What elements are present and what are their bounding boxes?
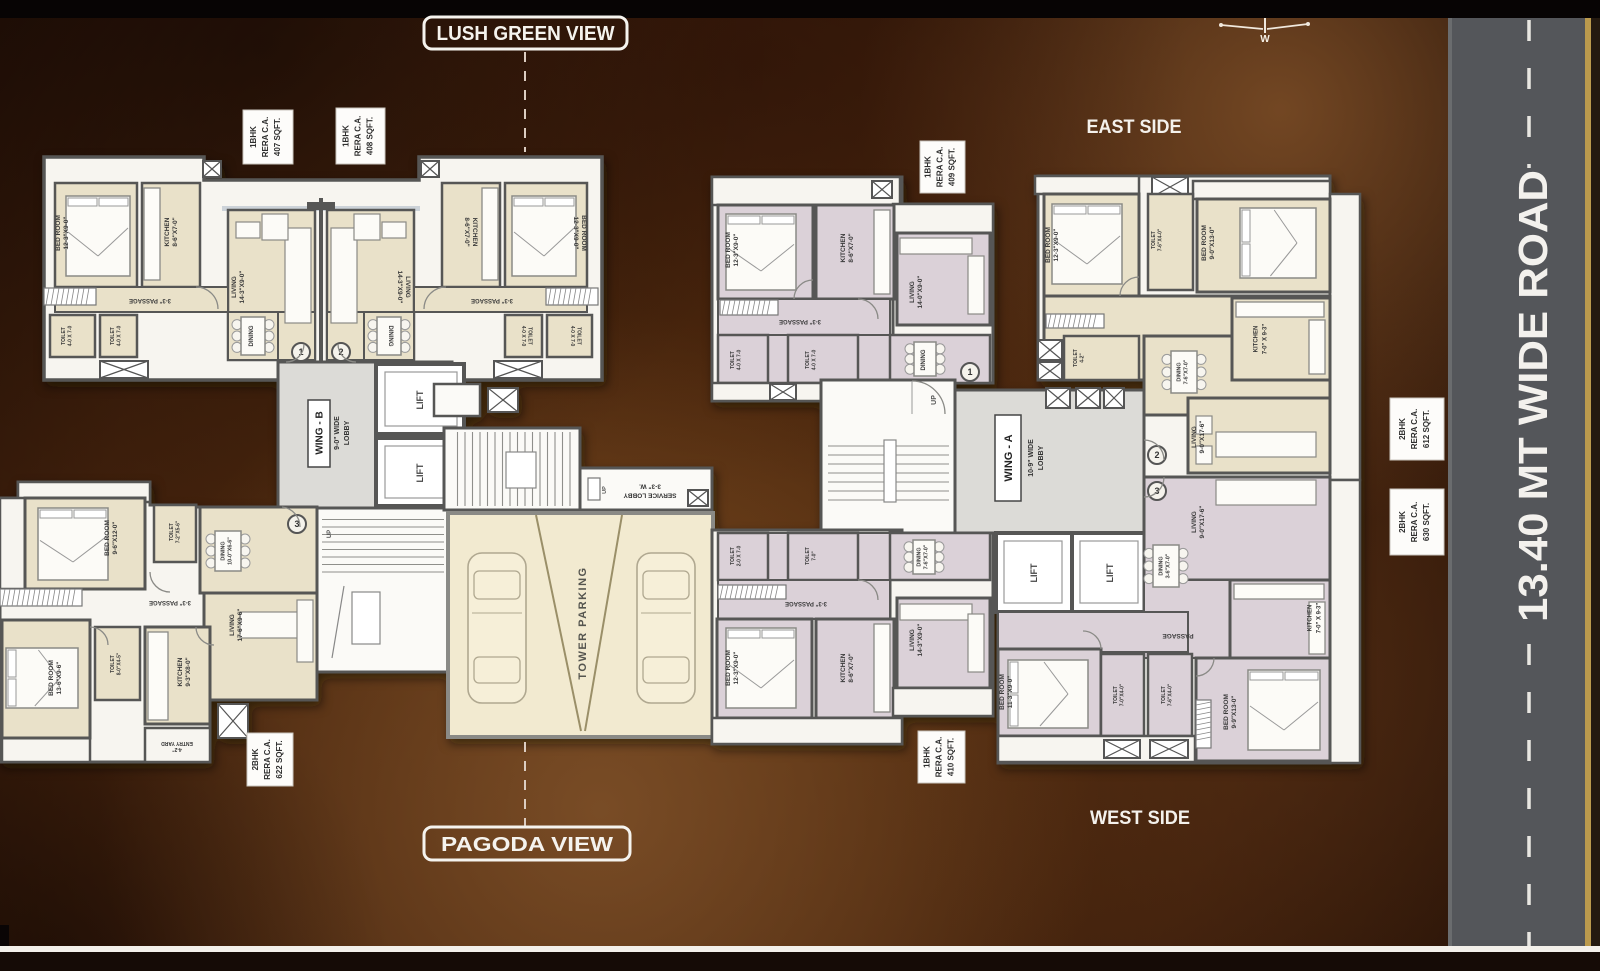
svg-text:BED ROOM: BED ROOM (104, 520, 111, 556)
svg-text:4-0 X 7-0: 4-0 X 7-0 (116, 326, 122, 347)
svg-text:UP: UP (327, 530, 333, 538)
svg-text:4-2": 4-2" (1079, 353, 1085, 363)
svg-text:7-0" X 9-3": 7-0" X 9-3" (1263, 324, 1269, 355)
svg-text:TOILET: TOILET (61, 327, 67, 345)
svg-text:BED ROOM: BED ROOM (1045, 227, 1052, 263)
svg-text:RERA C.A.: RERA C.A. (263, 739, 272, 780)
svg-text:409 SQFT.: 409 SQFT. (948, 148, 957, 186)
svg-text:WEST SIDE: WEST SIDE (1090, 808, 1190, 829)
svg-text:TOILET: TOILET (169, 523, 175, 541)
svg-text:RERA C.A.: RERA C.A. (1410, 502, 1419, 543)
svg-text:8-6"X7-0": 8-6"X7-0" (848, 233, 855, 262)
svg-text:KITCHEN: KITCHEN (840, 233, 847, 262)
svg-text:BED ROOM: BED ROOM (725, 650, 732, 686)
svg-text:13.40 MT WIDE ROAD: 13.40 MT WIDE ROAD (1510, 170, 1556, 622)
svg-text:407 SQFT.: 407 SQFT. (273, 118, 282, 156)
svg-text:RERA C.A.: RERA C.A. (935, 737, 944, 778)
svg-text:12-3"X9-0": 12-3"X9-0" (572, 217, 579, 250)
svg-text:2BHK: 2BHK (1398, 418, 1407, 440)
svg-text:14-0"X9-0": 14-0"X9-0" (917, 276, 924, 309)
svg-text:TOILET: TOILET (730, 547, 736, 565)
svg-text:2: 2 (1154, 450, 1159, 460)
svg-text:DINING: DINING (249, 325, 255, 346)
svg-text:10-0"X6-6": 10-0"X6-6" (228, 537, 234, 565)
svg-text:LIFT: LIFT (1029, 563, 1039, 582)
svg-text:4-0 X 7-0: 4-0 X 7-0 (569, 326, 575, 347)
svg-text:WING - B: WING - B (315, 411, 326, 454)
svg-text:LIVING: LIVING (229, 614, 236, 636)
svg-text:622 SQFT.: 622 SQFT. (275, 740, 284, 778)
svg-text:DINING: DINING (917, 547, 923, 566)
svg-text:TOWER PARKING: TOWER PARKING (577, 566, 589, 679)
svg-text:TOILET: TOILET (1151, 231, 1157, 249)
svg-text:SERVICE LOBBY: SERVICE LOBBY (623, 492, 677, 499)
svg-text:4-0 X 7-0: 4-0 X 7-0 (811, 350, 817, 371)
svg-text:1BHK: 1BHK (924, 156, 933, 178)
svg-text:9-0"X17-6": 9-0"X17-6" (1199, 506, 1206, 539)
svg-text:TOILET: TOILET (575, 327, 581, 345)
svg-text:ENTRY YARD: ENTRY YARD (161, 740, 193, 746)
svg-text:DINING: DINING (221, 541, 227, 560)
svg-text:TOILET: TOILET (110, 655, 116, 673)
svg-text:1BHK: 1BHK (342, 125, 351, 147)
svg-text:14-3"X9-0": 14-3"X9-0" (917, 624, 924, 657)
svg-text:BED ROOM: BED ROOM (1223, 694, 1230, 730)
svg-text:8-0"X4-5": 8-0"X4-5" (116, 652, 122, 675)
svg-text:LIVING: LIVING (404, 276, 411, 298)
svg-text:7-0" X 9-3": 7-0" X 9-3" (1317, 603, 1323, 634)
svg-text:TOILET: TOILET (805, 547, 811, 565)
svg-text:12-3"X9-0": 12-3"X9-0" (733, 234, 740, 267)
svg-text:LIFT: LIFT (415, 390, 425, 409)
svg-text:DINING: DINING (1177, 362, 1183, 381)
svg-text:3-3" PASSAGE: 3-3" PASSAGE (471, 297, 513, 303)
svg-text:17-6"X9-6": 17-6"X9-6" (237, 609, 244, 642)
svg-text:10-9" WIDE: 10-9" WIDE (1028, 439, 1035, 477)
svg-text:DINING: DINING (1159, 556, 1165, 575)
svg-text:PAGODA VIEW: PAGODA VIEW (441, 834, 613, 856)
svg-text:408 SQFT.: 408 SQFT. (366, 117, 375, 155)
svg-text:LIVING: LIVING (909, 629, 916, 651)
svg-text:12-3"X9-0": 12-3"X9-0" (733, 652, 740, 685)
svg-text:13-6"X9-6": 13-6"X9-6" (56, 662, 63, 695)
svg-text:TOILET: TOILET (526, 327, 532, 345)
svg-text:BED ROOM: BED ROOM (725, 232, 732, 268)
svg-text:9-0" WIDE: 9-0" WIDE (334, 416, 341, 450)
svg-text:KITCHEN: KITCHEN (164, 217, 171, 246)
svg-text:TOILET: TOILET (110, 327, 116, 345)
svg-text:RERA C.A.: RERA C.A. (936, 147, 945, 188)
svg-text:3-3" W.: 3-3" W. (639, 483, 661, 490)
svg-text:RERA C.A.: RERA C.A. (1410, 409, 1419, 450)
svg-text:8-6"X7-0": 8-6"X7-0" (848, 653, 855, 682)
svg-text:12-3"X9-0": 12-3"X9-0" (63, 217, 70, 250)
svg-text:LIVING: LIVING (1191, 511, 1198, 533)
svg-text:TOILET: TOILET (730, 351, 736, 369)
svg-text:9-9"X13-0": 9-9"X13-0" (1231, 696, 1238, 729)
svg-text:EAST SIDE: EAST SIDE (1087, 117, 1182, 138)
svg-text:LOBBY: LOBBY (1038, 445, 1045, 470)
svg-text:1: 1 (967, 367, 972, 377)
svg-text:4-0 X 7-0: 4-0 X 7-0 (520, 326, 526, 347)
svg-text:12-3"X9-0": 12-3"X9-0" (1053, 229, 1060, 262)
svg-text:9-0"X17-6": 9-0"X17-6" (1199, 421, 1206, 454)
svg-text:7-0"X4-0": 7-0"X4-0" (1119, 683, 1125, 706)
svg-text:W: W (1260, 34, 1270, 45)
svg-text:4-0 X 7-0: 4-0 X 7-0 (67, 326, 73, 347)
svg-text:2BHK: 2BHK (1398, 511, 1407, 533)
svg-text:3-3" PASSAGE: 3-3" PASSAGE (779, 318, 821, 324)
svg-text:1BHK: 1BHK (923, 746, 932, 768)
svg-text:11-3"X9-0": 11-3"X9-0" (1007, 676, 1014, 709)
svg-text:BED ROOM: BED ROOM (999, 674, 1006, 710)
svg-text:14-3"X9-0": 14-3"X9-0" (239, 271, 246, 304)
svg-text:7-6"X4-0": 7-6"X4-0" (1157, 228, 1163, 251)
svg-text:8-6"X7-0": 8-6"X7-0" (172, 217, 179, 246)
svg-text:BED ROOM: BED ROOM (55, 215, 62, 251)
svg-text:UP: UP (931, 395, 938, 405)
svg-text:9-0"X13-0": 9-0"X13-0" (1209, 227, 1216, 260)
svg-text:BED ROOM: BED ROOM (48, 660, 55, 696)
svg-text:BED ROOM: BED ROOM (580, 215, 587, 251)
svg-text:PASSAGE: PASSAGE (1162, 632, 1194, 639)
svg-text:TOILET: TOILET (1073, 349, 1079, 367)
svg-text:630 SQFT.: 630 SQFT. (1422, 503, 1431, 541)
svg-text:4-0 X 7-0: 4-0 X 7-0 (736, 350, 742, 371)
svg-text:WING - A: WING - A (1003, 434, 1015, 481)
svg-text:DINING: DINING (387, 326, 393, 347)
svg-text:9-3"X8-0": 9-3"X8-0" (185, 657, 192, 686)
svg-text:KITCHEN: KITCHEN (1308, 605, 1314, 632)
svg-text:2-0 X 7-0: 2-0 X 7-0 (736, 546, 742, 567)
svg-text:LIFT: LIFT (415, 463, 425, 482)
svg-text:14-3"X9-0": 14-3"X9-0" (396, 271, 403, 304)
svg-text:KITCHEN: KITCHEN (1254, 326, 1260, 353)
svg-text:3-3" PASSAGE: 3-3" PASSAGE (129, 297, 171, 303)
svg-text:3-6"X7-0": 3-6"X7-0" (1166, 553, 1172, 578)
svg-text:1BHK: 1BHK (249, 126, 258, 148)
svg-text:RERA C.A.: RERA C.A. (354, 116, 363, 157)
svg-text:3-3" PASSAGE: 3-3" PASSAGE (149, 599, 191, 605)
svg-text:LIVING: LIVING (1191, 426, 1198, 448)
svg-text:TOILET: TOILET (1161, 686, 1167, 704)
svg-text:DINING: DINING (921, 349, 927, 370)
svg-text:7-0": 7-0" (811, 551, 817, 561)
svg-text:7-6"X7-0": 7-6"X7-0" (924, 544, 930, 569)
svg-text:BED ROOM: BED ROOM (1201, 225, 1208, 261)
svg-text:LIVING: LIVING (909, 281, 916, 303)
svg-text:RERA C.A.: RERA C.A. (261, 117, 270, 158)
svg-text:4-2": 4-2" (172, 746, 182, 752)
svg-text:3-3" PASSAGE: 3-3" PASSAGE (785, 600, 827, 606)
svg-text:TOILET: TOILET (805, 351, 811, 369)
svg-text:2BHK: 2BHK (251, 748, 260, 770)
svg-text:612 SQFT.: 612 SQFT. (1422, 410, 1431, 448)
svg-text:TOILET: TOILET (1113, 686, 1119, 704)
svg-text:LIVING: LIVING (231, 276, 238, 298)
svg-text:UP: UP (602, 486, 608, 494)
svg-text:8-6"X7-0": 8-6"X7-0" (463, 217, 470, 246)
svg-text:KITCHEN: KITCHEN (471, 218, 478, 247)
svg-text:7-2"X5-6": 7-2"X5-6" (175, 520, 181, 543)
svg-text:LOBBY: LOBBY (344, 420, 351, 445)
svg-text:LIFT: LIFT (1105, 563, 1115, 582)
svg-text:9-6"X12-0": 9-6"X12-0" (112, 522, 119, 555)
svg-text:LUSH GREEN VIEW: LUSH GREEN VIEW (437, 23, 615, 45)
svg-text:KITCHEN: KITCHEN (177, 657, 184, 686)
svg-text:7-6"X7-0": 7-6"X7-0" (1184, 359, 1190, 384)
svg-text:410 SQFT.: 410 SQFT. (947, 738, 956, 776)
svg-text:7-6"X4-0": 7-6"X4-0" (1167, 683, 1173, 706)
svg-text:KITCHEN: KITCHEN (840, 653, 847, 682)
